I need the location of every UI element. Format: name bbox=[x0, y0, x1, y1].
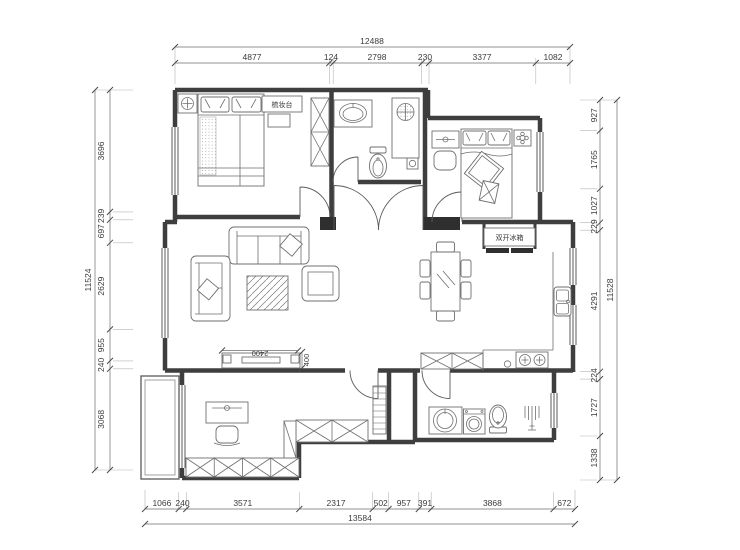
toilet-bottom bbox=[490, 405, 507, 433]
entry-wall-stub-right bbox=[423, 217, 460, 230]
dining-chair bbox=[461, 260, 471, 277]
kitchen: 双开冰箱 bbox=[483, 228, 571, 371]
window-bathroom-2 bbox=[550, 393, 558, 428]
dim-right-seg-2: 1027 bbox=[589, 196, 599, 215]
dim-right-seg-1: 1765 bbox=[589, 150, 599, 169]
floor-plan-canvas: 12488 4877 124 2798 230 3377 1082 1066 2… bbox=[0, 0, 740, 550]
dining-chair bbox=[420, 282, 430, 299]
single-bed bbox=[461, 129, 512, 218]
dim-bottom-seg-5: 957 bbox=[397, 498, 411, 508]
nightstand-2 bbox=[514, 130, 531, 146]
tv-depth-dim: 400 bbox=[302, 354, 311, 367]
dim-bottom-seg-3: 2317 bbox=[327, 498, 346, 508]
dining-chair bbox=[420, 260, 430, 277]
fridge-unit bbox=[486, 248, 509, 253]
dim-top-overall: 12488 bbox=[360, 36, 384, 46]
dim-right-seg-7: 1338 bbox=[589, 448, 599, 467]
tv-cabinet: 2400 400 bbox=[219, 348, 311, 372]
dim-top-seg-4: 3377 bbox=[473, 52, 492, 62]
washing-machine bbox=[464, 409, 486, 434]
dim-left-seg-6: 3068 bbox=[96, 410, 106, 429]
cushion bbox=[479, 181, 499, 204]
sofa-loveseat bbox=[191, 256, 230, 321]
dim-bottom-seg-6: 391 bbox=[418, 498, 432, 508]
study-desk bbox=[206, 402, 248, 423]
floor-drain bbox=[407, 158, 418, 169]
shower-sprayer bbox=[525, 406, 539, 430]
dim-bottom-overall: 13584 bbox=[348, 513, 372, 523]
dim-left-seg-0: 3696 bbox=[96, 141, 106, 160]
dining-chair bbox=[437, 311, 455, 321]
mattress-hatch bbox=[200, 117, 216, 175]
dim-top-seg-2: 2798 bbox=[368, 52, 387, 62]
dim-right-seg-3: 229 bbox=[589, 219, 599, 233]
shower bbox=[392, 98, 419, 158]
dining-table-set bbox=[420, 242, 471, 321]
gas-point bbox=[504, 361, 510, 367]
balcony bbox=[141, 376, 179, 479]
dim-left-seg-2: 697 bbox=[96, 224, 106, 238]
dimension-chain-right: 927 1765 1027 229 4291 224 1727 1338 115… bbox=[580, 97, 620, 483]
bookcase-bottom bbox=[186, 458, 299, 477]
cooktop bbox=[516, 352, 548, 368]
dim-bottom-seg-8: 672 bbox=[557, 498, 571, 508]
dressing-table: 梳妆台 bbox=[262, 96, 302, 127]
bathroom-top bbox=[334, 98, 419, 178]
desk bbox=[432, 131, 459, 148]
dim-left-seg-3: 2629 bbox=[96, 276, 106, 295]
dim-top-seg-0: 4877 bbox=[243, 52, 262, 62]
kitchen-sink bbox=[554, 287, 571, 316]
entry-double-door bbox=[334, 186, 423, 231]
desk-chair bbox=[434, 151, 456, 170]
dim-top-seg-3: 230 bbox=[418, 52, 432, 62]
sofa-three-seat bbox=[229, 227, 309, 264]
washbasin-counter bbox=[334, 100, 372, 127]
dim-bottom-seg-1: 240 bbox=[175, 498, 189, 508]
dim-left-seg-4: 955 bbox=[96, 338, 106, 352]
fridge-unit bbox=[511, 248, 533, 253]
dining-chair bbox=[437, 242, 455, 252]
dim-right-seg-4: 4291 bbox=[589, 291, 599, 310]
study bbox=[186, 386, 386, 477]
bedroom-2 bbox=[432, 129, 531, 218]
coffee-table bbox=[247, 276, 288, 310]
dim-right-seg-6: 1727 bbox=[589, 398, 599, 417]
dim-right-overall: 11528 bbox=[605, 278, 615, 301]
speaker bbox=[291, 355, 299, 363]
window-bedroom-2 bbox=[536, 132, 544, 192]
office-chair bbox=[214, 426, 240, 446]
dimension-chain-top: 12488 4877 124 2798 230 3377 1082 bbox=[172, 36, 573, 84]
dim-bottom-seg-2: 3571 bbox=[233, 498, 252, 508]
sideboard bbox=[421, 353, 483, 369]
dim-left-overall: 11524 bbox=[83, 268, 93, 291]
tv-width-dim: 2400 bbox=[252, 349, 269, 358]
dining-room bbox=[420, 242, 483, 369]
dim-right-seg-5: 224 bbox=[589, 368, 599, 382]
dining-chair bbox=[461, 282, 471, 299]
dim-top-seg-5: 1082 bbox=[544, 52, 563, 62]
fridge-label: 双开冰箱 bbox=[496, 233, 524, 242]
dim-bottom-seg-4: 502 bbox=[374, 498, 388, 508]
dimension-chain-left: 3696 239 697 2629 955 240 3068 11524 bbox=[83, 87, 133, 473]
dim-left-seg-5: 240 bbox=[96, 358, 106, 372]
dimension-chain-bottom: 1066 240 3571 2317 502 957 391 3868 672 … bbox=[142, 490, 578, 527]
dim-left-seg-1: 239 bbox=[96, 209, 106, 223]
bookcase-side bbox=[284, 420, 368, 458]
master-bedroom: 梳妆台 bbox=[178, 94, 329, 186]
window-living-room bbox=[161, 248, 169, 338]
bathroom-bottom bbox=[429, 405, 539, 434]
armchair bbox=[302, 266, 339, 301]
toilet-top bbox=[370, 147, 387, 178]
vanity bbox=[429, 407, 462, 434]
door-master-bedroom bbox=[300, 187, 330, 217]
dressing-table-label: 梳妆台 bbox=[272, 100, 293, 109]
duct-shaft bbox=[373, 386, 386, 434]
window-kitchen-upper bbox=[569, 248, 577, 285]
living-room: 2400 400 bbox=[191, 227, 339, 371]
dim-right-seg-0: 927 bbox=[589, 108, 599, 122]
wardrobe bbox=[311, 98, 329, 166]
floor-plan-page: 12488 4877 124 2798 230 3377 1082 1066 2… bbox=[0, 0, 740, 550]
door-bathroom-top bbox=[333, 157, 358, 182]
door-bathroom-bottom bbox=[422, 371, 450, 399]
dim-bottom-seg-7: 3868 bbox=[483, 498, 502, 508]
dim-top-seg-1: 124 bbox=[324, 52, 338, 62]
window-master-bedroom bbox=[171, 127, 179, 195]
double-bed bbox=[198, 94, 264, 186]
fridge-nook: 双开冰箱 bbox=[484, 228, 535, 253]
dim-bottom-seg-0: 1066 bbox=[152, 498, 171, 508]
nightstand bbox=[178, 94, 197, 113]
speaker bbox=[223, 355, 231, 363]
